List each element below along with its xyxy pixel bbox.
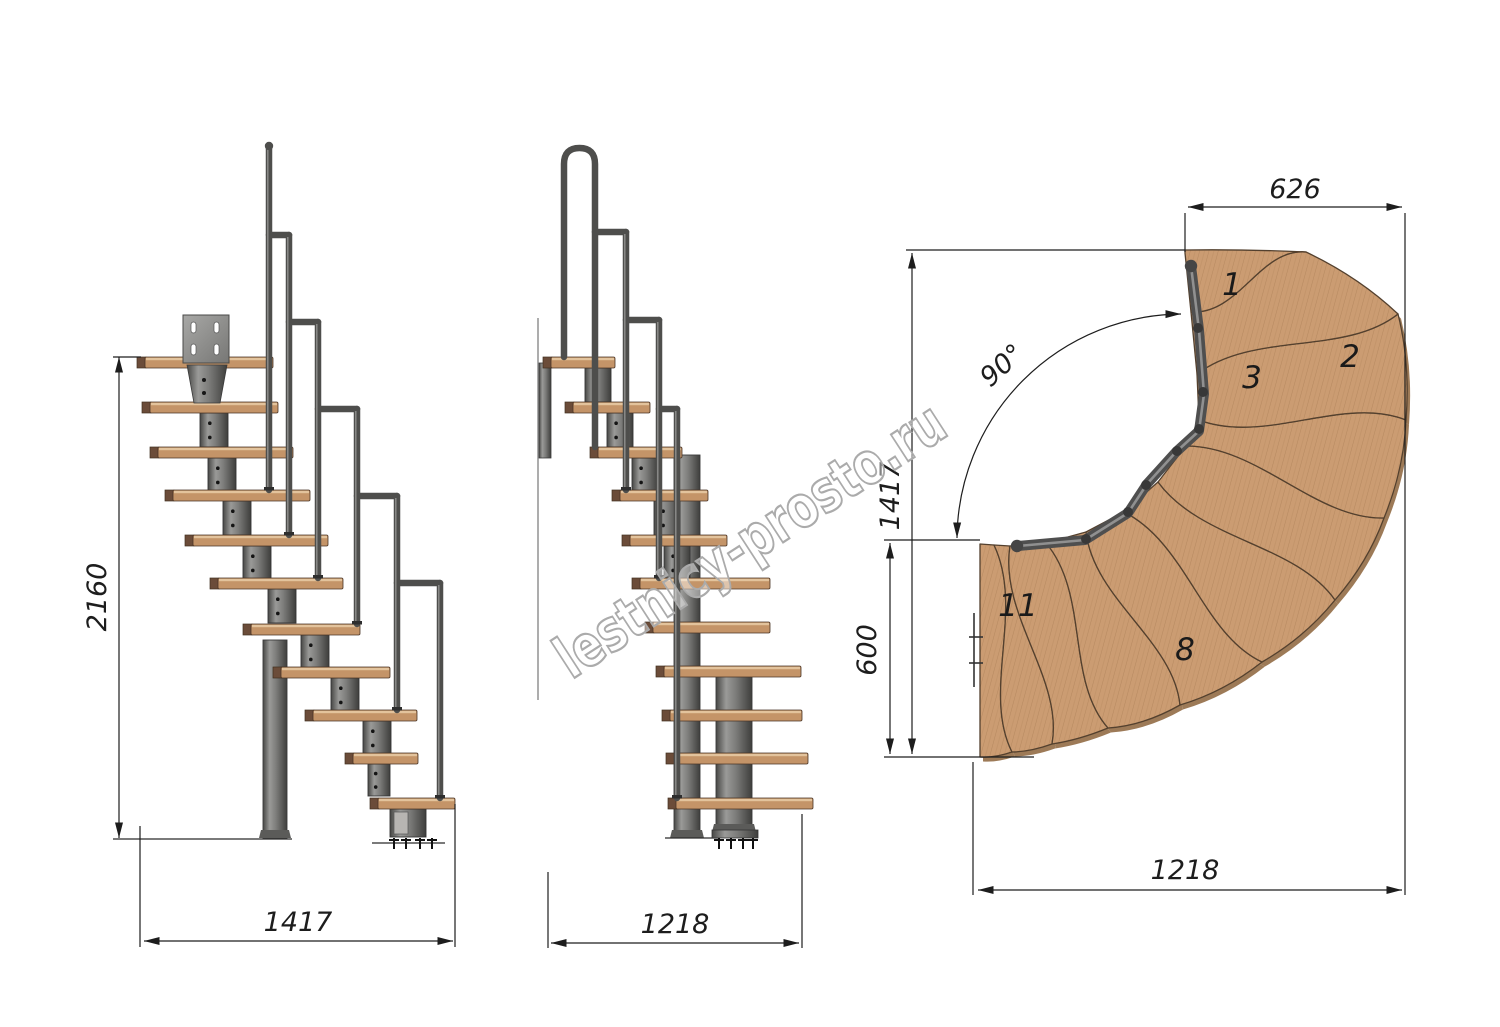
elevation-tread (210, 578, 343, 589)
side-elevation-stair (137, 142, 455, 838)
step-number-8: 8 (1175, 632, 1195, 668)
side-width-label: 1417 (264, 907, 333, 938)
spine-module (243, 546, 271, 580)
elevation-tread (662, 710, 802, 721)
elevation-tread (142, 402, 278, 413)
turn-angle-label: 90° (974, 338, 1030, 393)
top-mounting-plate (183, 315, 229, 403)
spine-module (223, 501, 251, 535)
step-number-1: 1 (1222, 267, 1242, 303)
elevation-tread (185, 535, 328, 546)
spine-module (632, 458, 658, 492)
elevation-tread (666, 753, 808, 764)
plan-top-width-label: 626 (1269, 174, 1321, 205)
spine-module (363, 721, 391, 755)
module-panel (394, 812, 408, 834)
elevation-tread (345, 753, 418, 764)
plan-view: 1 2 3 8 11 (852, 174, 1410, 895)
plan-lower-depth-label: 600 (852, 624, 883, 676)
elevation-tread (543, 357, 615, 368)
step-number-11: 11 (998, 588, 1037, 624)
spine-module (200, 413, 228, 447)
elevation-tread (668, 798, 813, 809)
elevation-tread (273, 667, 390, 678)
drawing-page: 2160 1417 1218 1 2 3 8 11 (0, 0, 1500, 1027)
elevation-tread (565, 402, 650, 413)
front-width-label: 1218 (641, 909, 710, 940)
column-base (259, 830, 291, 838)
spine-module (368, 764, 390, 796)
base-anchor-bolts-front (714, 838, 758, 849)
step-number-3: 3 (1242, 360, 1262, 396)
step-number-2: 2 (1340, 339, 1360, 375)
handrail (564, 148, 682, 799)
elevation-tread (590, 447, 682, 458)
spine-module (208, 458, 236, 492)
side-elevation-view: 2160 1417 (82, 142, 455, 947)
base-plate-front (712, 830, 758, 838)
elevation-tread (305, 710, 417, 721)
staircase-drawing: 2160 1417 1218 1 2 3 8 11 (0, 0, 1500, 1027)
spine-module (301, 635, 329, 669)
spine-module (268, 589, 296, 623)
elevation-tread (243, 624, 360, 635)
spine-module (331, 678, 359, 712)
side-height-label: 2160 (82, 563, 113, 632)
wall-bracket (539, 363, 551, 458)
plan-bottom-width-label: 1218 (1151, 855, 1220, 886)
column-base (670, 830, 704, 838)
